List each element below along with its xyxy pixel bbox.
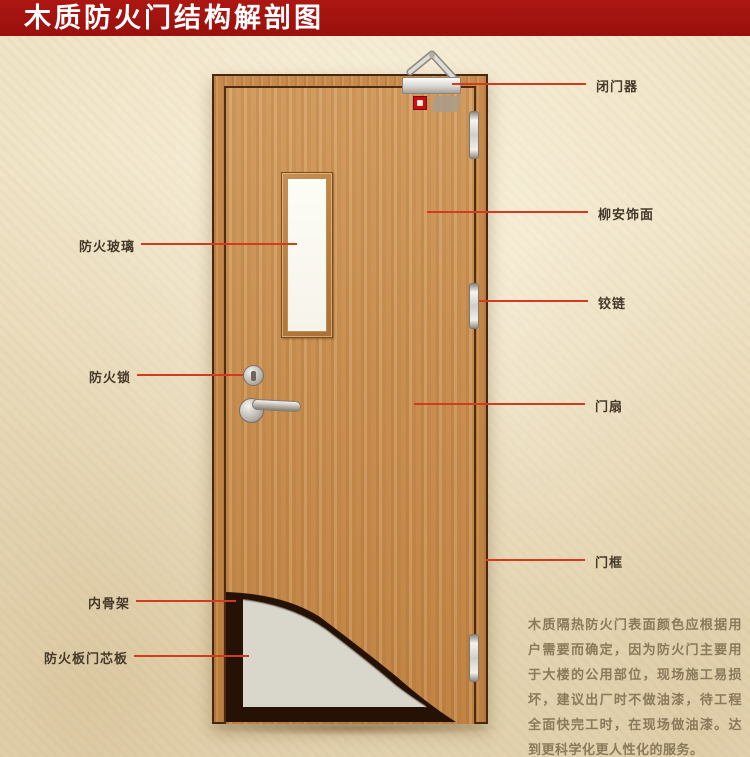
leader-line-door-frame [486,559,585,561]
leader-line-door-leaf [414,403,585,405]
callout-core-board: 防火板门芯板 [44,648,128,667]
diagram-canvas: 木质防火门结构解剖图 防火玻璃 防火锁 内骨架 防火板门芯板 闭门器 柳安饰面 … [0,0,750,757]
door-shadow [200,720,505,736]
leader-line-hinge [479,300,588,302]
fire-glass-panel [287,178,327,332]
page-title-text: 木质防火门结构解剖图 [24,3,324,33]
callout-veneer: 柳安饰面 [598,204,654,223]
callout-hinge: 铰链 [598,293,626,312]
leader-line-veneer [427,211,588,213]
leader-line-core-board [134,655,249,657]
product-description: 木质隔热防火门表面颜色应根据用户需要而确定，因为防火门主要用于大楼的公用部位，现… [528,612,742,757]
leader-line-door-closer [452,83,586,85]
callout-fire-glass: 防火玻璃 [79,236,135,255]
keyhole [251,371,256,381]
callout-door-closer: 闭门器 [596,76,638,95]
core-board-panel [243,600,426,707]
cutaway-section [224,580,476,724]
leader-line-inner-skeleton [136,600,236,602]
page-title: 木质防火门结构解剖图 [0,0,750,36]
leader-line-fire-glass [141,243,297,245]
hinge-middle [469,283,479,329]
callout-fire-lock: 防火锁 [89,367,131,386]
callout-door-frame: 门框 [595,552,623,571]
door-closer-shadow [432,96,460,112]
hinge-top [469,111,479,159]
callout-door-leaf: 门扇 [595,396,623,415]
callout-inner-skeleton: 内骨架 [88,593,130,612]
indicator-light [417,100,423,106]
door-closer-body [402,77,461,94]
leader-line-fire-lock [137,374,243,376]
